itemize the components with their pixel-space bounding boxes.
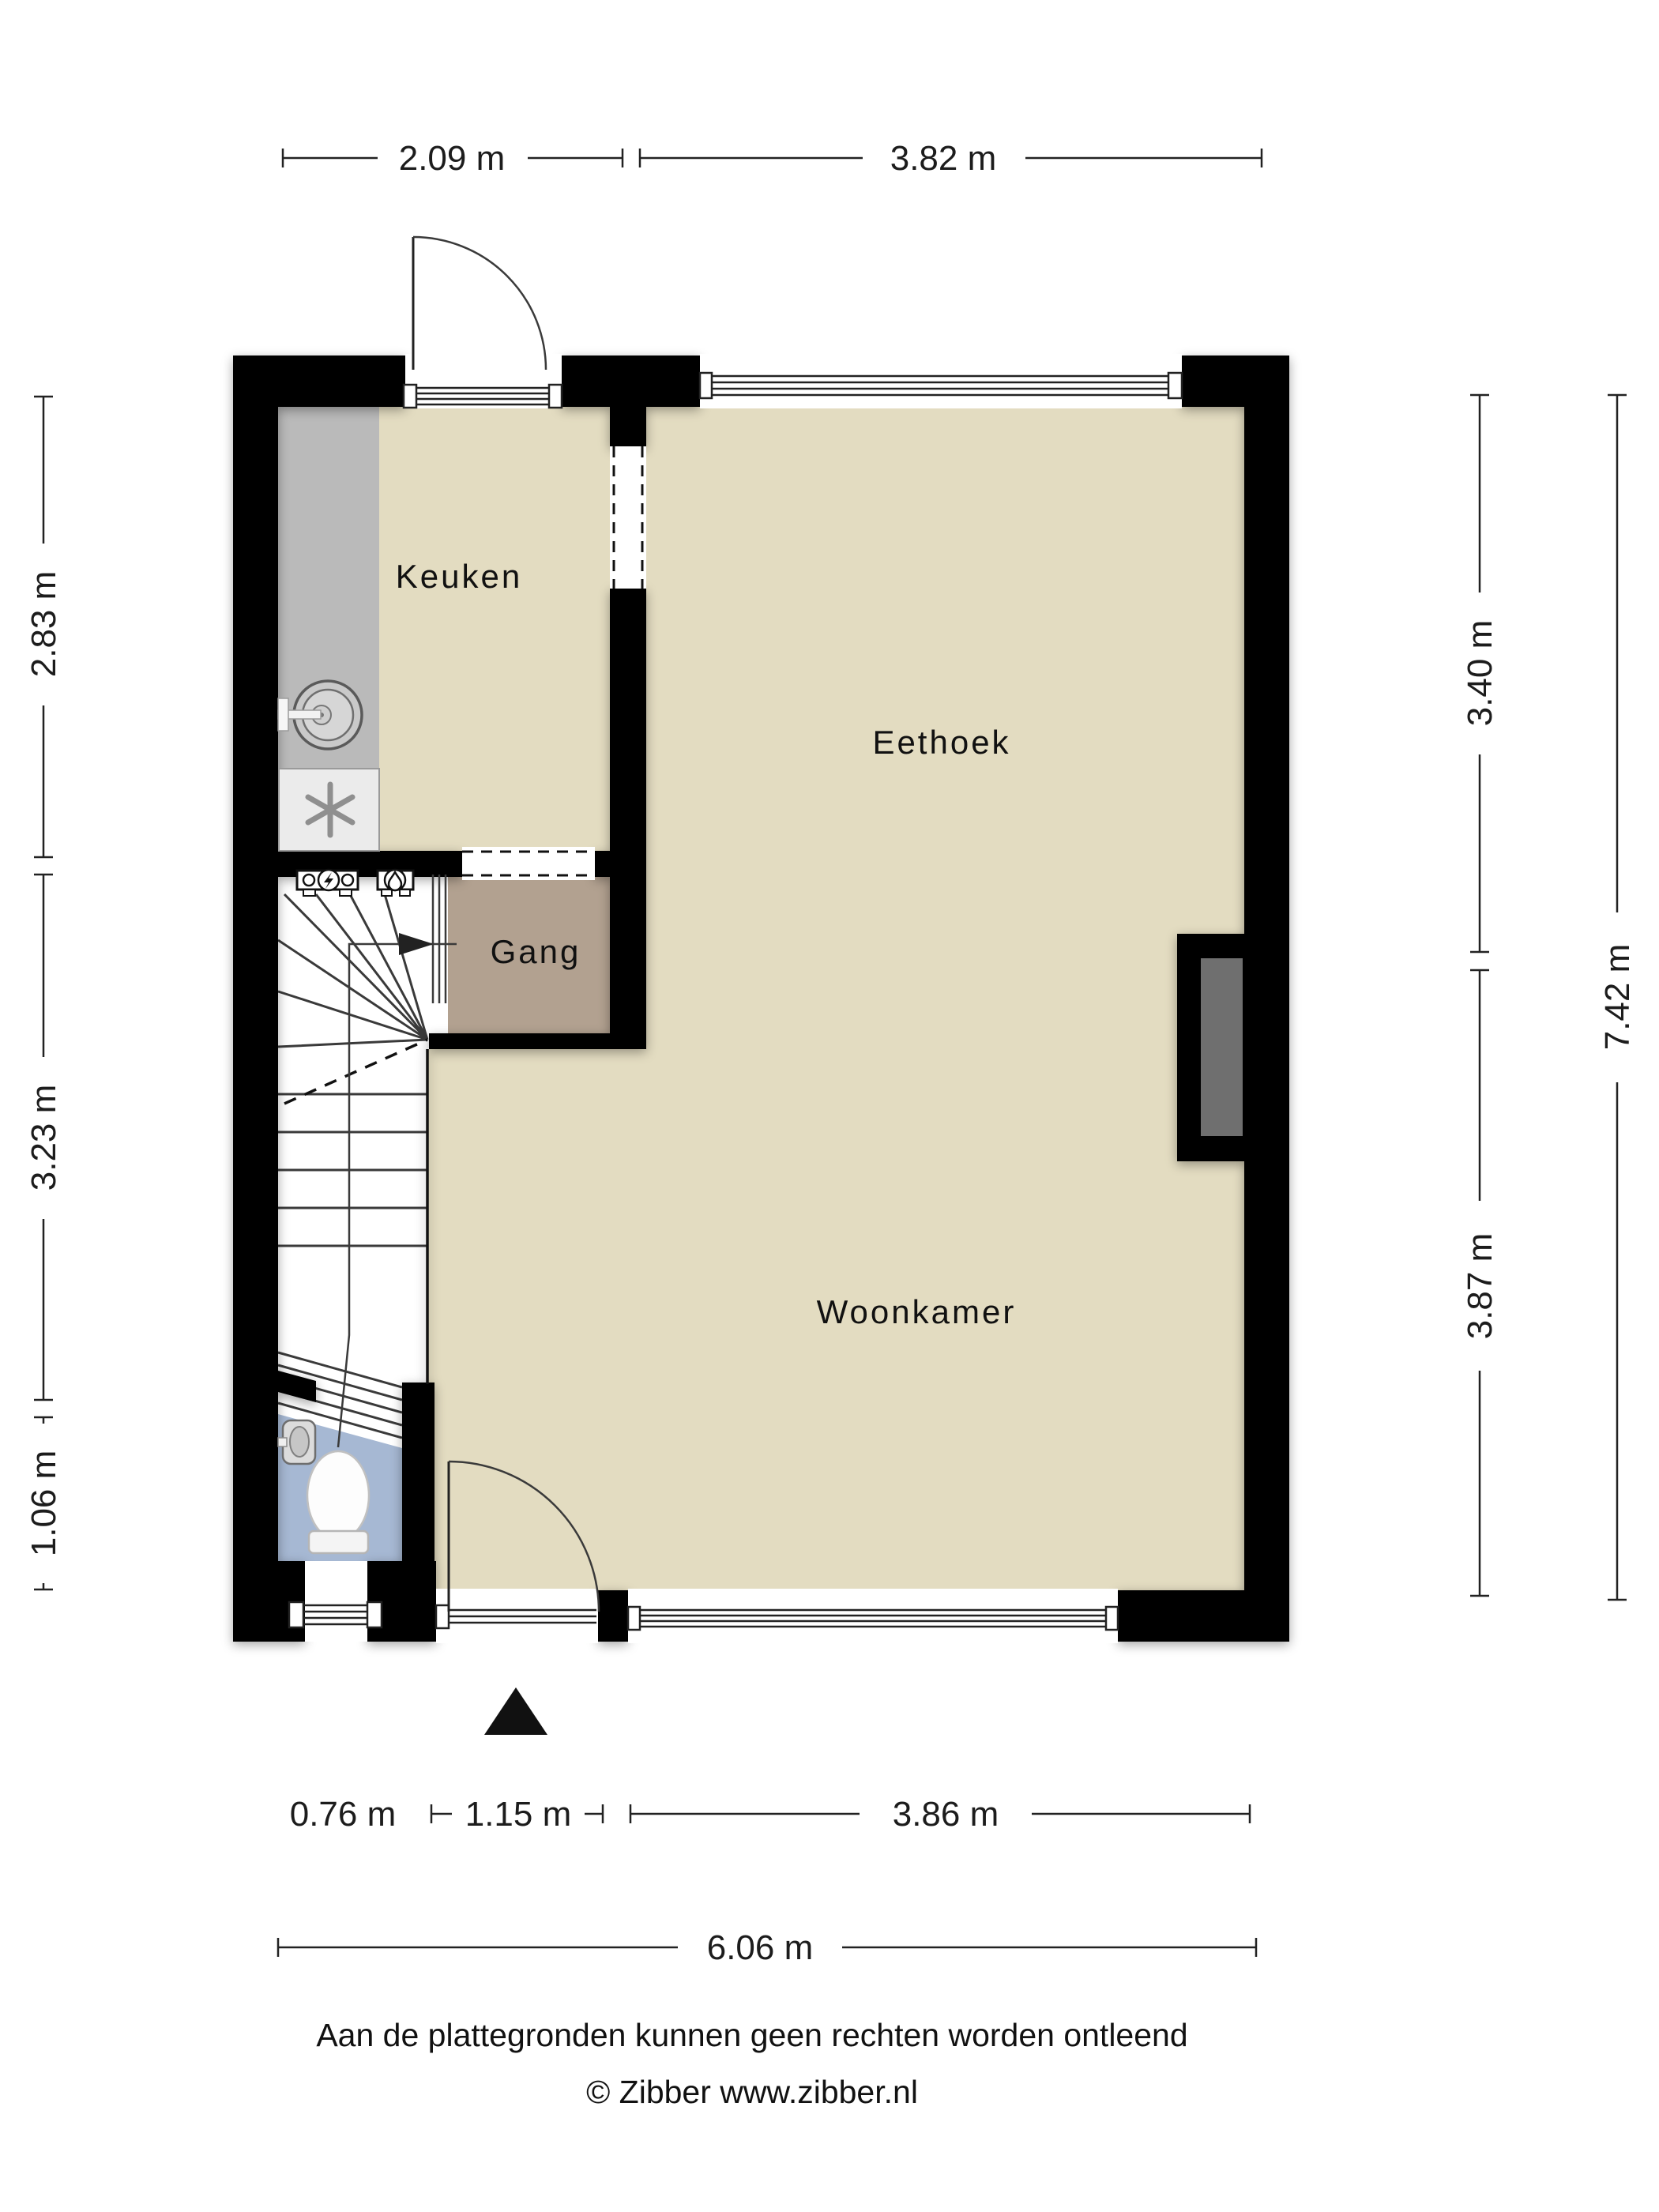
chimney-flue <box>1201 958 1243 1136</box>
wall-left <box>233 355 278 1642</box>
wall-bottom-door-pier <box>598 1590 628 1642</box>
toilet-window-post-right <box>367 1602 382 1627</box>
dim-top-1: 2.09 m <box>399 139 506 178</box>
living-window-post-right <box>1106 1607 1118 1630</box>
dim-bottom-total: 6.06 m <box>707 1928 814 1967</box>
toilet-window-post-left <box>289 1602 303 1627</box>
room-label-hall: Gang <box>491 933 581 970</box>
wall-kitchen-dining-top <box>610 407 646 446</box>
back-door-post-right <box>549 385 562 408</box>
wall-toilet-right <box>402 1382 434 1590</box>
stair-direction-arrow-icon <box>399 933 434 955</box>
wall-kitchen-dining-bottom <box>610 589 646 1049</box>
meter-foot <box>340 890 352 896</box>
dim-bottom-2: 1.15 m <box>465 1795 572 1834</box>
meter-foot <box>303 890 315 896</box>
back-door-post-left <box>404 385 416 408</box>
wall-toilet-angled-stub <box>278 1371 316 1402</box>
dim-top-2: 3.82 m <box>890 139 997 178</box>
dim-bottom-1: 0.76 m <box>290 1795 397 1834</box>
dim-right-2: 3.87 m <box>1461 1233 1499 1340</box>
dining-window-post-right <box>1168 373 1182 398</box>
back-door-swing-arc <box>413 237 546 370</box>
dining-window-post-left <box>700 373 712 398</box>
living-window-post-left <box>628 1607 640 1630</box>
dim-left-1: 2.83 m <box>24 571 63 678</box>
stair-straight-treads <box>278 1094 427 1246</box>
room-label-dining: Eethoek <box>872 724 1010 761</box>
room-label-living: Woonkamer <box>817 1293 1017 1330</box>
meter-foot <box>400 890 410 896</box>
dim-right-1: 3.40 m <box>1461 620 1499 727</box>
room-label-kitchen: Keuken <box>396 558 522 595</box>
toilet-window-niche <box>305 1561 367 1642</box>
dining-window-opening <box>700 354 1182 408</box>
footer: Aan de plattegronden kunnen geen rechten… <box>316 2017 1187 2110</box>
meter-dial <box>303 875 314 886</box>
dim-left-2: 3.23 m <box>24 1085 63 1191</box>
meter-cupboard <box>297 870 413 896</box>
dim-left-3: 1.06 m <box>24 1450 63 1557</box>
toilet-bowl-icon <box>307 1451 369 1540</box>
front-door-post-left <box>436 1605 449 1628</box>
meter-dial <box>342 875 353 886</box>
meter-foot <box>382 890 392 896</box>
dining-living-floor <box>646 407 1244 1590</box>
floorplan-page: Keuken Eethoek Gang Woonkamer 2.09 m 3.8… <box>0 0 1659 2212</box>
wall-bottom-right <box>1118 1590 1289 1642</box>
wall-kitchen-hall <box>595 851 646 877</box>
hall-door-lines <box>433 875 446 1003</box>
footer-copyright: © Zibber www.zibber.nl <box>586 2074 918 2110</box>
dim-bottom-3: 3.86 m <box>893 1795 999 1834</box>
entrance-arrow-icon <box>484 1687 547 1735</box>
wall-hall-living <box>429 1033 646 1049</box>
wall-top-middle <box>562 355 700 407</box>
footer-disclaimer: Aan de plattegronden kunnen geen rechten… <box>316 2017 1187 2053</box>
living-floor-left <box>427 1049 646 1590</box>
floorplan-drawing: Keuken Eethoek Gang Woonkamer 2.09 m 3.8… <box>0 0 1659 2212</box>
dim-right-total: 7.42 m <box>1598 944 1637 1051</box>
kitchen-floor <box>379 407 646 851</box>
kitchen-tap-base <box>278 698 288 731</box>
back-door-opening <box>405 354 562 408</box>
toilet-cistern <box>309 1531 368 1553</box>
hand-basin-tap <box>278 1438 287 1446</box>
stair-winder-treads <box>278 894 427 1047</box>
hand-basin-bowl <box>290 1427 309 1457</box>
serving-hatch-opening <box>610 446 646 589</box>
